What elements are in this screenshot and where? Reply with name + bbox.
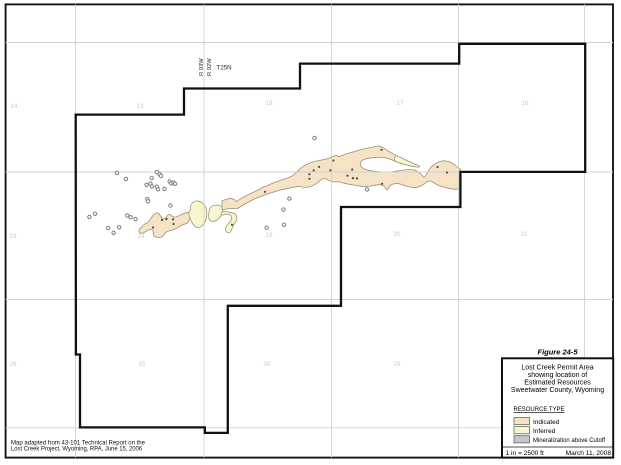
svg-text:Inferred: Inferred — [533, 428, 556, 435]
svg-text:Lost Creek Permit Area: Lost Creek Permit Area — [521, 365, 593, 372]
svg-text:24: 24 — [138, 233, 145, 240]
svg-text:1 in = 2500 ft: 1 in = 2500 ft — [506, 450, 544, 457]
svg-text:26: 26 — [10, 361, 17, 368]
svg-text:16: 16 — [522, 100, 529, 107]
svg-text:13: 13 — [137, 103, 144, 110]
svg-text:29: 29 — [394, 361, 401, 368]
svg-text:Figure 24-5: Figure 24-5 — [537, 348, 578, 357]
svg-text:Estimated Resources: Estimated Resources — [524, 380, 591, 387]
svg-text:30: 30 — [264, 361, 271, 368]
svg-text:RESOURCE TYPE: RESOURCE TYPE — [514, 406, 566, 413]
svg-text:Indicated: Indicated — [533, 419, 560, 426]
svg-text:T25N: T25N — [217, 65, 232, 72]
svg-text:Mineralization above Cutoff: Mineralization above Cutoff — [533, 437, 605, 444]
svg-text:Lost Creek Project, Wyoming, R: Lost Creek Project, Wyoming, RPA, June 1… — [11, 446, 143, 453]
svg-text:March 11, 2008: March 11, 2008 — [566, 450, 612, 457]
svg-text:showing location of: showing location of — [528, 372, 588, 379]
svg-text:18: 18 — [266, 100, 273, 107]
svg-text:19: 19 — [266, 232, 273, 239]
svg-text:17: 17 — [397, 100, 404, 107]
svg-text:20: 20 — [394, 231, 401, 238]
svg-text:21: 21 — [521, 231, 528, 238]
svg-text:R 92W: R 92W — [207, 58, 213, 76]
svg-text:14: 14 — [11, 103, 18, 110]
svg-text:23: 23 — [10, 233, 17, 240]
svg-text:25: 25 — [139, 361, 146, 368]
svg-text:Sweetwater County, Wyoming: Sweetwater County, Wyoming — [511, 387, 604, 394]
